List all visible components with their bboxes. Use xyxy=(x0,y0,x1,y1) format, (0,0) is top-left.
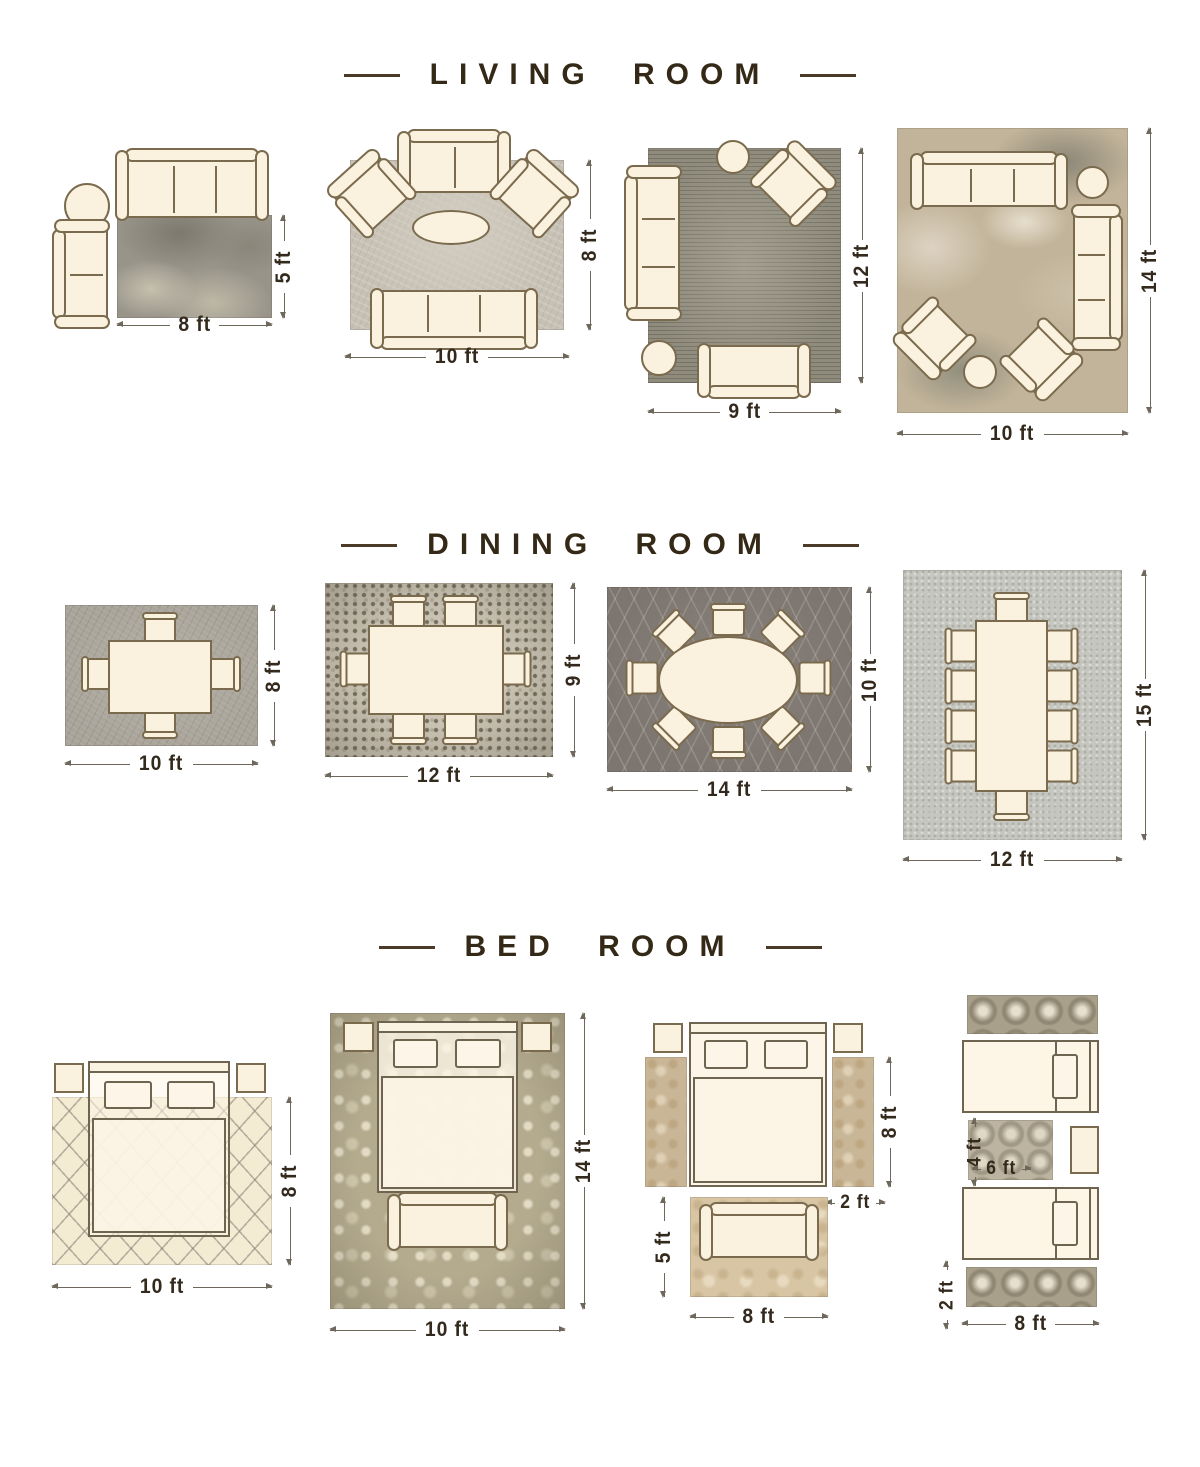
dining-chair xyxy=(712,608,745,636)
nightstand xyxy=(343,1022,374,1052)
dimension-label: 10 ft xyxy=(858,657,882,701)
loveseat xyxy=(700,345,808,395)
dining-chair xyxy=(208,658,236,690)
nightstand xyxy=(521,1022,552,1052)
runner-rug xyxy=(966,1267,1097,1307)
height-dimension: 12 ft xyxy=(850,148,874,383)
dimension-label: 5 ft xyxy=(272,250,296,283)
width-dimension: 10 ft xyxy=(65,752,258,776)
section-title-living-room: LIVING ROOM xyxy=(0,58,1200,92)
dimension-label: 8 ft xyxy=(262,659,286,692)
dining-table xyxy=(368,625,504,715)
nightstand xyxy=(833,1023,863,1053)
nightstand xyxy=(653,1023,683,1053)
dining-chair xyxy=(392,600,425,628)
rug-size-guide: LIVING ROOM 8 ft 5 ft xyxy=(0,0,1200,1467)
title-dash xyxy=(341,544,397,547)
dimension-label: 15 ft xyxy=(1133,683,1157,727)
bed xyxy=(88,1061,230,1237)
width-dimension: 10 ft xyxy=(897,422,1128,446)
width-dimension: 12 ft xyxy=(903,848,1122,872)
height-dimension: 10 ft xyxy=(858,587,882,772)
small-rug-width-dimension: 6 ft xyxy=(972,1158,1052,1180)
section-title-dining-room: DINING ROOM xyxy=(0,528,1200,562)
dimension-label: 5 ft xyxy=(652,1231,676,1264)
runner-rug xyxy=(645,1057,687,1187)
dining-chair xyxy=(950,750,978,783)
width-dimension: 8 ft xyxy=(117,313,272,337)
dining-chair xyxy=(950,670,978,703)
sofa xyxy=(628,168,680,318)
width-dimension: 10 ft xyxy=(52,1275,272,1299)
height-dimension: 14 ft xyxy=(1138,128,1162,413)
dimension-label: 2 ft xyxy=(936,1276,958,1313)
runner-rug xyxy=(967,995,1098,1034)
width-dimension: 12 ft xyxy=(325,764,553,788)
oval-dining-table xyxy=(658,636,798,724)
dimension-label: 10 ft xyxy=(984,422,1041,446)
dining-chair xyxy=(1046,710,1074,743)
nightstand xyxy=(1070,1126,1099,1174)
title-dash xyxy=(766,946,822,949)
dimension-label: 12 ft xyxy=(984,848,1041,872)
width-dimension: 10 ft xyxy=(345,345,569,369)
runner-length-dimension: 8 ft xyxy=(962,1312,1099,1336)
dimension-label: 10 ft xyxy=(133,1275,190,1299)
dimension-label: 8 ft xyxy=(736,1305,782,1329)
dining-chair xyxy=(995,788,1028,816)
dimension-label: 12 ft xyxy=(850,243,874,287)
dimension-label: 14 ft xyxy=(1138,248,1162,292)
runner-height-dimension: 8 ft xyxy=(878,1057,902,1187)
rug xyxy=(117,215,272,318)
title-dash xyxy=(800,74,856,77)
dining-chair xyxy=(799,662,827,695)
nightstand xyxy=(236,1063,266,1093)
height-dimension: 15 ft xyxy=(1133,570,1157,840)
height-dimension: 8 ft xyxy=(278,1097,302,1265)
dimension-label: 8 ft xyxy=(578,229,602,262)
dining-chair xyxy=(1046,750,1074,783)
width-dimension: 14 ft xyxy=(607,778,852,802)
bench xyxy=(390,1196,505,1248)
sofa xyxy=(913,155,1065,207)
dimension-label: 8 ft xyxy=(878,1106,902,1139)
dimension-label: 14 ft xyxy=(701,778,758,802)
twin-bed xyxy=(962,1040,1099,1113)
round-side-table xyxy=(716,140,750,174)
foot-rug-height-dimension: 5 ft xyxy=(652,1197,676,1297)
dining-chair xyxy=(712,726,745,754)
dining-chair xyxy=(444,712,477,740)
oval-coffee-table xyxy=(412,210,490,245)
dining-chair xyxy=(444,600,477,628)
height-dimension: 14 ft xyxy=(572,1013,596,1309)
bed xyxy=(689,1022,827,1187)
dining-chair xyxy=(1046,670,1074,703)
dimension-label: 9 ft xyxy=(562,654,586,687)
round-side-table xyxy=(641,340,677,376)
dimension-label: 8 ft xyxy=(278,1165,302,1198)
dimension-label: 6 ft xyxy=(983,1158,1020,1180)
dimension-label: 10 ft xyxy=(428,345,485,369)
dining-chair xyxy=(392,712,425,740)
round-side-table xyxy=(1076,166,1109,199)
width-dimension: 10 ft xyxy=(330,1318,565,1342)
height-dimension: 5 ft xyxy=(272,215,296,318)
dining-table xyxy=(975,620,1048,792)
height-dimension: 8 ft xyxy=(262,605,286,746)
title-dash xyxy=(803,544,859,547)
dimension-label: 8 ft xyxy=(1008,1312,1054,1336)
sofa xyxy=(373,290,535,346)
bed xyxy=(377,1021,518,1193)
section-title-text: LIVING ROOM xyxy=(430,58,771,92)
sofa xyxy=(118,152,266,218)
dining-chair xyxy=(950,710,978,743)
twin-bed xyxy=(962,1187,1099,1260)
dining-chair xyxy=(950,630,978,663)
runner-width-dimension: 2 ft xyxy=(935,1261,959,1311)
dimension-label: 14 ft xyxy=(572,1139,596,1183)
runner-width-dimension: 2 ft xyxy=(826,1192,884,1214)
sofa xyxy=(1073,207,1119,348)
section-title-bed-room: BED ROOM xyxy=(0,930,1200,964)
title-dash xyxy=(379,946,435,949)
round-side-table xyxy=(963,355,997,389)
dimension-label: 12 ft xyxy=(410,764,467,788)
dining-chair xyxy=(631,662,659,695)
runner-rug xyxy=(832,1057,874,1187)
dimension-label: 9 ft xyxy=(722,400,768,424)
dimension-label: 10 ft xyxy=(419,1318,476,1342)
title-dash xyxy=(344,74,400,77)
dimension-label: 2 ft xyxy=(837,1192,874,1214)
dimension-label: 8 ft xyxy=(172,313,218,337)
loveseat xyxy=(400,133,508,193)
width-dimension: 9 ft xyxy=(648,400,841,424)
nightstand xyxy=(54,1063,84,1093)
section-title-text: BED ROOM xyxy=(465,930,736,964)
dimension-label: 10 ft xyxy=(133,752,190,776)
sofa xyxy=(702,1206,816,1258)
dining-table xyxy=(108,640,212,714)
loveseat xyxy=(56,222,108,326)
foot-rug-width-dimension: 8 ft xyxy=(690,1305,828,1329)
dining-chair xyxy=(1046,630,1074,663)
section-title-text: DINING ROOM xyxy=(427,528,773,562)
height-dimension: 8 ft xyxy=(578,160,602,330)
height-dimension: 9 ft xyxy=(562,583,586,757)
